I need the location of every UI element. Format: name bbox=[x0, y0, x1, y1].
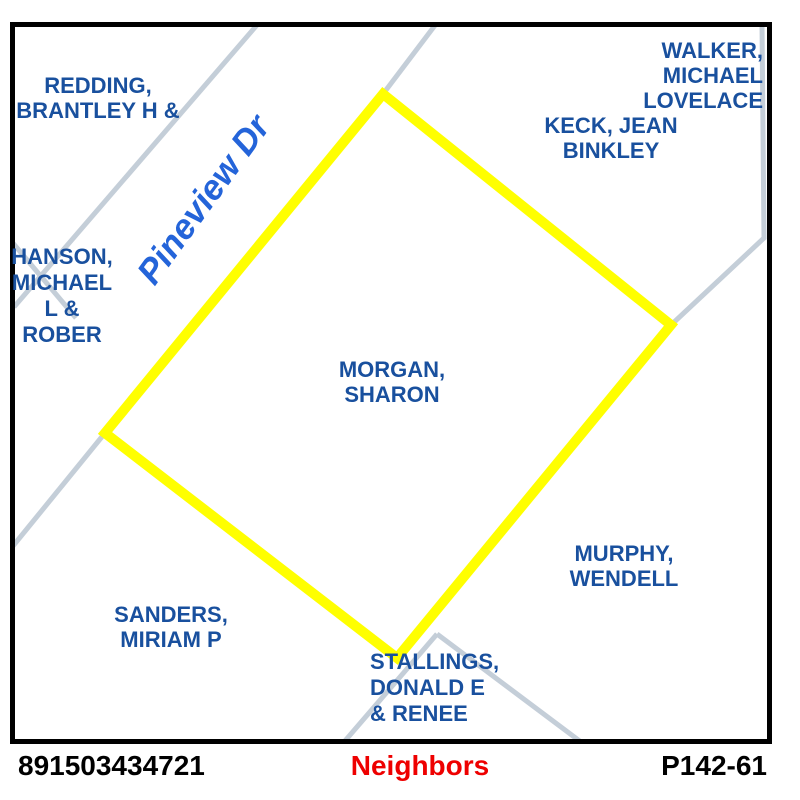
owner-label-line: WALKER, bbox=[603, 38, 763, 63]
owner-label-walker: WALKER, MICHAEL LOVELACE bbox=[603, 38, 763, 113]
owner-label-line: KECK, JEAN bbox=[531, 113, 691, 138]
parcel-map-page: REDDING, BRANTLEY H & Pineview Dr HANSON… bbox=[0, 0, 800, 800]
owner-label-line: BRANTLEY H & bbox=[8, 98, 188, 123]
owner-label-line: MORGAN, bbox=[312, 357, 472, 382]
map-labels-layer: REDDING, BRANTLEY H & Pineview Dr HANSON… bbox=[0, 0, 800, 800]
owner-label-line: LOVELACE bbox=[603, 88, 763, 113]
owner-label-line: WENDELL bbox=[544, 566, 704, 591]
owner-label-line: MICHAEL bbox=[603, 63, 763, 88]
owner-label-line: SHARON bbox=[312, 382, 472, 407]
owner-label-line: SANDERS, bbox=[91, 602, 251, 627]
owner-label-line: & RENEE bbox=[370, 701, 530, 727]
owner-label-sanders: SANDERS, MIRIAM P bbox=[91, 602, 251, 652]
owner-label-line: BINKLEY bbox=[531, 138, 691, 163]
owner-label-line: L & bbox=[10, 296, 114, 322]
owner-label-line: STALLINGS, bbox=[370, 649, 530, 675]
owner-label-line: ROBER bbox=[10, 322, 114, 348]
map-view-title: Neighbors bbox=[320, 750, 520, 782]
owner-label-hanson: HANSON, MICHAEL L & ROBER bbox=[10, 244, 114, 348]
owner-label-keck: KECK, JEAN BINKLEY bbox=[531, 113, 691, 163]
owner-label-line: MURPHY, bbox=[544, 541, 704, 566]
owner-label-stallings: STALLINGS, DONALD E & RENEE bbox=[370, 649, 530, 727]
owner-label-line: REDDING, bbox=[8, 73, 188, 98]
parcel-id-text: 891503434721 bbox=[18, 750, 205, 782]
owner-label-line: MIRIAM P bbox=[91, 627, 251, 652]
owner-label-murphy: MURPHY, WENDELL bbox=[544, 541, 704, 591]
owner-label-line: HANSON, bbox=[10, 244, 114, 270]
road-label-pineview: Pineview Dr bbox=[130, 108, 279, 292]
owner-label-morgan-selected: MORGAN, SHARON bbox=[312, 357, 472, 407]
owner-label-line: DONALD E bbox=[370, 675, 530, 701]
owner-label-line: MICHAEL bbox=[10, 270, 114, 296]
owner-label-redding: REDDING, BRANTLEY H & bbox=[8, 73, 188, 123]
page-reference-text: P142-61 bbox=[617, 750, 767, 782]
